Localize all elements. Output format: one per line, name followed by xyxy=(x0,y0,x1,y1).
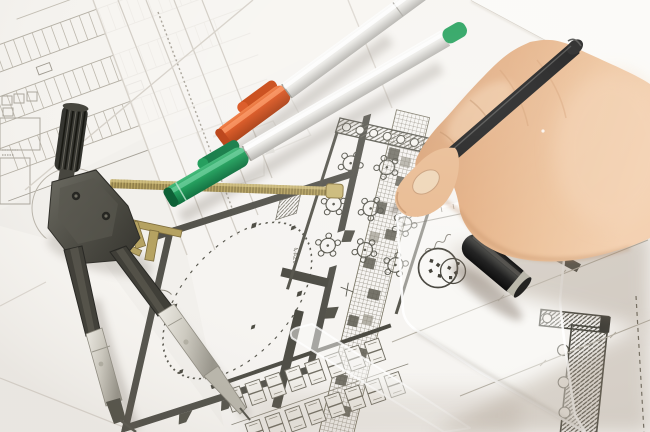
vignette xyxy=(0,0,650,432)
photograph-architect-drawing: 4-A21 xyxy=(0,0,650,432)
